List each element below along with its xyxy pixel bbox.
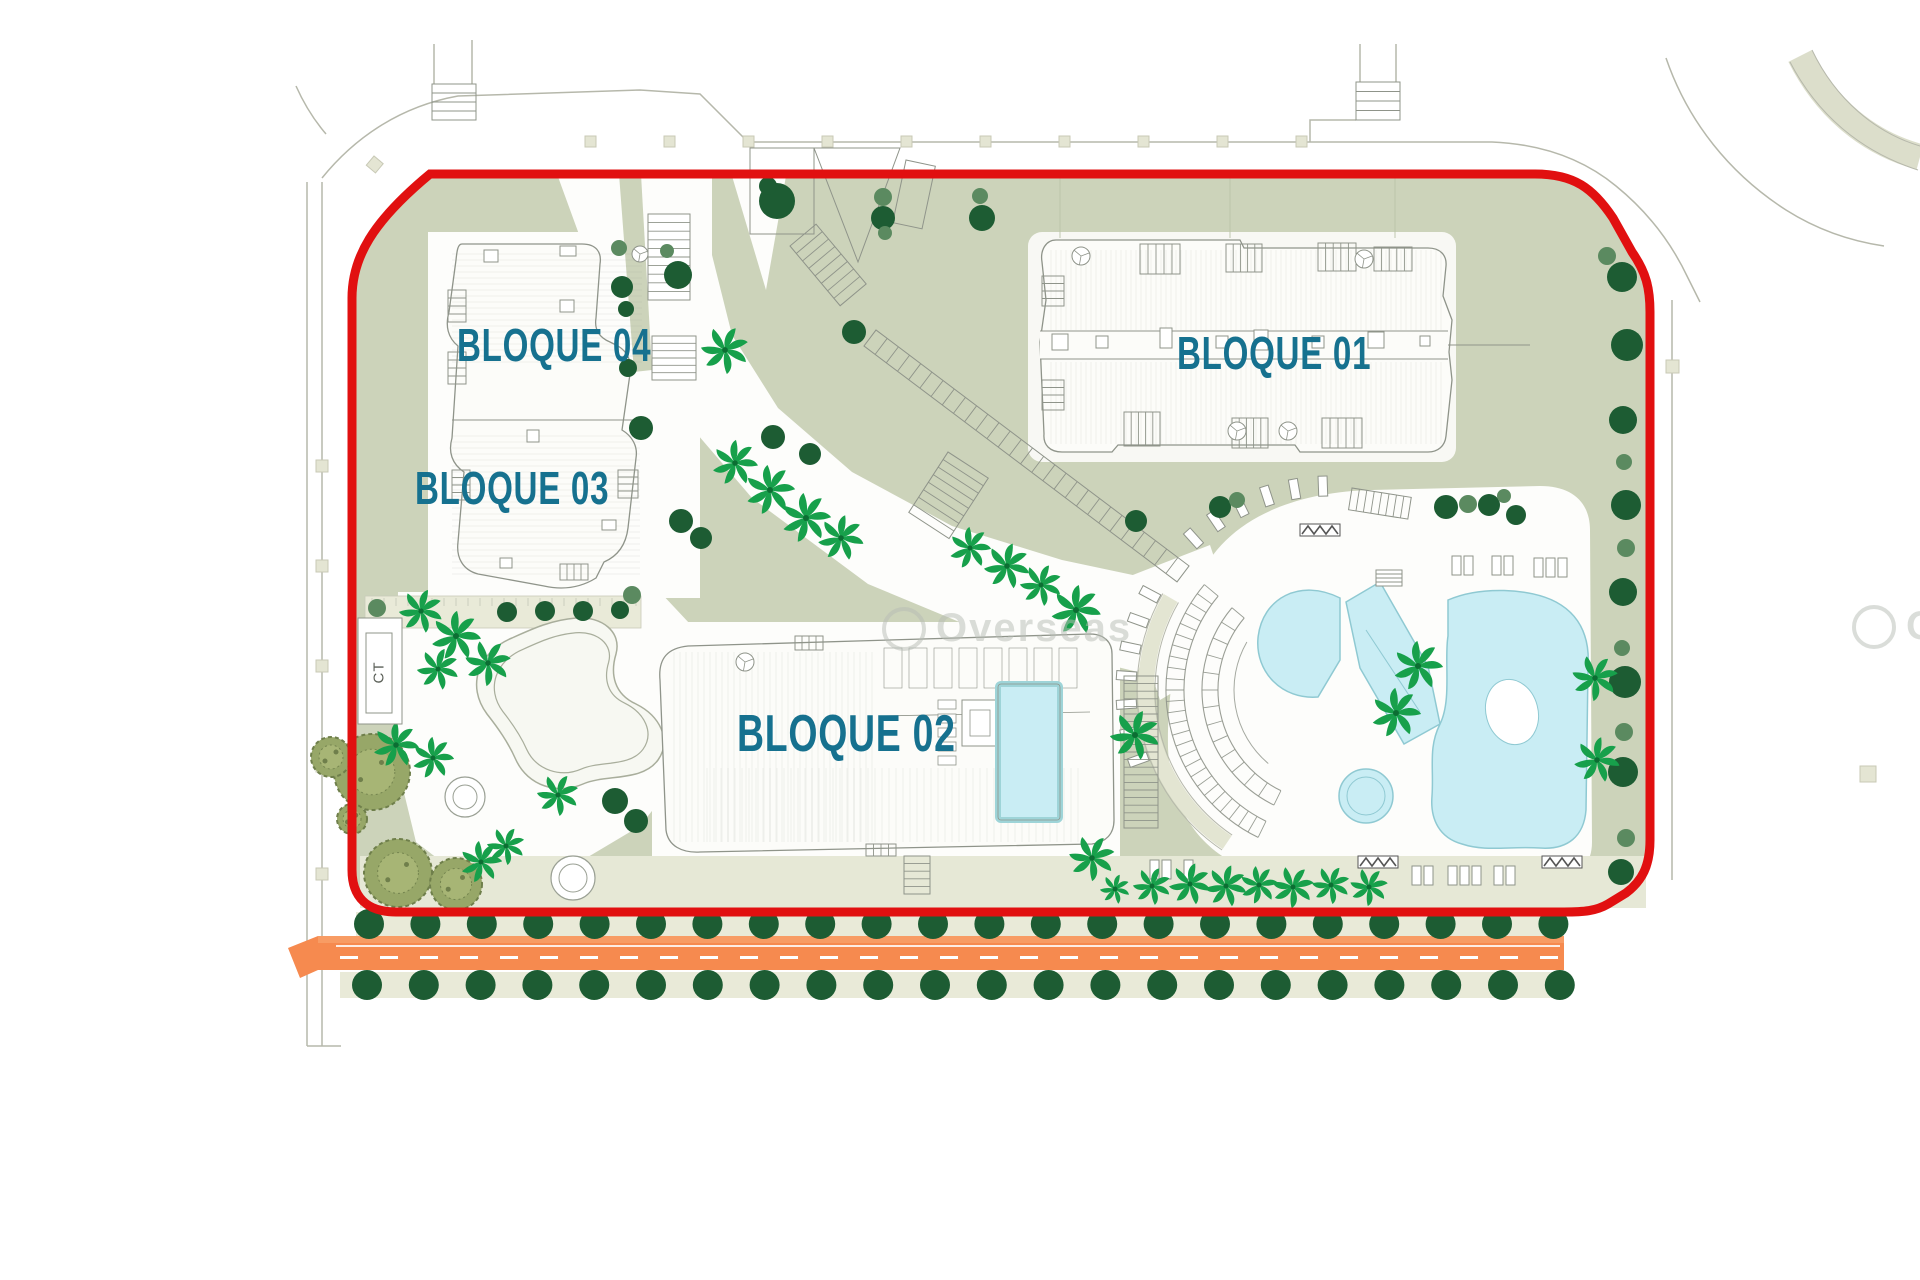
olive-dot <box>379 760 384 765</box>
sidewalk-line <box>1666 58 1884 246</box>
palm-core <box>1132 732 1138 738</box>
tree-icon <box>1608 859 1634 885</box>
tree-icon <box>1034 970 1064 1000</box>
roof-structure <box>962 700 998 746</box>
sidewalk-line <box>1310 120 1356 142</box>
tree-icon <box>1614 640 1630 656</box>
pavement-marker <box>1138 136 1149 147</box>
palm-core <box>1223 883 1228 888</box>
tree-icon <box>920 970 950 1000</box>
watermark-text: Overseas <box>1906 604 1920 649</box>
tree-icon <box>1459 495 1477 513</box>
tree-icon <box>690 527 712 549</box>
watermark-overseas-partial: Overseas <box>1852 604 1920 649</box>
tree-icon <box>669 509 693 533</box>
tree-icon <box>1261 970 1291 1000</box>
fountain <box>551 856 595 900</box>
tree-icon <box>1615 723 1633 741</box>
corridor-core <box>1052 334 1068 350</box>
tree-icon <box>660 244 674 258</box>
sun-lounger <box>1162 860 1171 879</box>
palm-core <box>504 844 509 849</box>
sun-lounger <box>1116 699 1137 709</box>
tree-icon <box>972 188 988 204</box>
palm-core <box>453 633 459 639</box>
tree-icon <box>579 970 609 1000</box>
tree-icon <box>466 970 496 1000</box>
roof-detail <box>484 250 498 262</box>
tree-icon <box>1611 329 1643 361</box>
zigzag-marker <box>1542 856 1582 868</box>
sun-lounger <box>1558 558 1567 577</box>
palm-core <box>1290 884 1295 889</box>
palm-core <box>1415 663 1421 669</box>
sun-lounger <box>1504 556 1513 575</box>
palm-core <box>1329 883 1334 888</box>
olive-dot <box>323 759 328 764</box>
olive-dot <box>385 877 390 882</box>
sun-lounger <box>1318 476 1328 496</box>
tree-icon <box>624 809 648 833</box>
label-ct-transformer: CT <box>371 646 388 700</box>
roof-detail <box>527 430 539 442</box>
tree-icon <box>1598 247 1616 265</box>
tree-icon <box>1506 505 1526 525</box>
sidewalk-line <box>322 90 1492 178</box>
label-bloque-01: BLOQUE 01 <box>1177 330 1371 376</box>
tree-icon <box>969 205 995 231</box>
pavement-marker <box>1860 766 1876 782</box>
pavement-marker <box>1059 136 1070 147</box>
tree-icon <box>1617 539 1635 557</box>
tree-icon <box>1607 262 1637 292</box>
tree-icon <box>636 970 666 1000</box>
tree-icon <box>1478 494 1500 516</box>
palm-core <box>1257 883 1262 888</box>
tree-icon <box>806 970 836 1000</box>
palm-core <box>967 545 972 550</box>
corridor-core <box>1160 328 1172 348</box>
tree-icon <box>573 601 593 621</box>
sun-lounger <box>1506 866 1515 885</box>
pavement-marker <box>316 660 328 672</box>
tree-icon <box>1609 406 1637 434</box>
olive-inner <box>440 868 471 899</box>
label-bloque-03: BLOQUE 03 <box>415 465 609 511</box>
sun-lounger <box>1452 556 1461 575</box>
palm-core <box>1594 757 1600 763</box>
tree-icon <box>759 177 777 195</box>
tree-icon <box>1617 829 1635 847</box>
olive-dot <box>446 887 451 892</box>
site-plan-canvas: BLOQUE 04 BLOQUE 03 BLOQUE 01 BLOQUE 02 … <box>0 0 1920 1280</box>
sidewalk-line <box>296 86 326 134</box>
spiral-stair <box>1355 250 1373 268</box>
sun-lounger <box>1534 558 1543 577</box>
crosswalk-top-right <box>1356 82 1400 120</box>
tree-icon <box>1488 970 1518 1000</box>
palm-core <box>803 515 809 521</box>
tree-icon <box>750 970 780 1000</box>
tree-icon <box>618 301 634 317</box>
spiral-stair <box>1072 247 1090 265</box>
palm-core <box>393 742 399 748</box>
tree-icon <box>1125 510 1147 532</box>
pavement-marker <box>1296 136 1307 147</box>
palm-core <box>478 859 483 864</box>
palm-core <box>1187 881 1192 886</box>
sun-lounger <box>1116 699 1137 709</box>
palm-core <box>1393 710 1399 716</box>
tree-icon <box>878 226 892 240</box>
olive-dot <box>404 862 409 867</box>
sun-lounger <box>1318 476 1328 496</box>
pool-steps <box>1376 570 1402 586</box>
roof-detail <box>560 246 576 256</box>
sun-lounger <box>1460 866 1469 885</box>
tree-icon <box>1318 970 1348 1000</box>
tree-icon <box>761 425 785 449</box>
olive-dot <box>460 875 465 880</box>
palm-core <box>418 608 423 613</box>
tree-icon <box>629 416 653 440</box>
sun-lounger <box>1492 556 1501 575</box>
roof-detail <box>560 300 574 312</box>
tree-icon <box>977 970 1007 1000</box>
zigzag-marker <box>1358 856 1398 868</box>
sun-lounger <box>1464 556 1473 575</box>
spiral-stair <box>1228 422 1246 440</box>
tree-icon <box>1229 492 1245 508</box>
pavement-marker <box>316 868 328 880</box>
palm-core <box>838 535 844 541</box>
olive-inner <box>319 745 343 769</box>
tree-icon <box>799 443 821 465</box>
olive-inner <box>378 853 419 894</box>
zigzag-marker <box>1300 524 1340 536</box>
sun-lounger <box>1546 558 1555 577</box>
corridor-core <box>1096 336 1108 348</box>
palm-core <box>435 666 440 671</box>
palm-core <box>1089 855 1095 861</box>
palm-core <box>1150 884 1155 889</box>
road-tip <box>288 936 318 978</box>
pavement-marker <box>366 156 383 173</box>
pavement-marker <box>822 136 833 147</box>
pavement-marker-tilted <box>366 156 383 173</box>
corridor-core <box>1420 336 1430 346</box>
palm-core <box>767 487 773 493</box>
spiral-stair <box>1279 422 1297 440</box>
pavement-marker <box>1666 360 1679 373</box>
fountain <box>445 777 485 817</box>
tree-icon <box>368 599 386 617</box>
spiral-stair <box>736 653 754 671</box>
tree-icon <box>693 970 723 1000</box>
tree-icon <box>1616 454 1632 470</box>
tree-icon <box>664 261 692 289</box>
tree-icon <box>1147 970 1177 1000</box>
palm-core <box>1038 582 1043 587</box>
palm-core <box>485 660 491 666</box>
palm-core <box>555 792 560 797</box>
roof-detail <box>500 558 512 568</box>
tree-icon <box>409 970 439 1000</box>
palm-core <box>722 347 728 353</box>
tree-icon <box>497 602 517 622</box>
tree-icon <box>611 240 627 256</box>
tree-icon <box>352 970 382 1000</box>
watermark-overseas: Overseas <box>882 606 1132 651</box>
tree-icon <box>1609 666 1641 698</box>
palm-core <box>430 755 435 760</box>
tree-icon <box>1204 970 1234 1000</box>
label-bloque-02: BLOQUE 02 <box>737 708 956 760</box>
tree-icon <box>611 601 629 619</box>
watermark-logo-icon <box>1852 605 1896 649</box>
pavement-marker <box>585 136 596 147</box>
pavement-marker <box>743 136 754 147</box>
pavement-marker <box>316 460 328 472</box>
watermark-logo-icon <box>882 607 926 651</box>
tree-icon <box>863 970 893 1000</box>
tree-icon <box>623 586 641 604</box>
olive-tree-icon <box>311 737 351 777</box>
tree-icon <box>1090 970 1120 1000</box>
tree-icon <box>602 788 628 814</box>
tree-icon <box>535 601 555 621</box>
tree-icon <box>1374 970 1404 1000</box>
tree-icon <box>1497 489 1511 503</box>
olive-dot <box>334 750 339 755</box>
label-bloque-04: BLOQUE 04 <box>457 322 651 368</box>
palm-core <box>732 460 738 466</box>
palm-core <box>1592 675 1598 681</box>
pavement-marker <box>664 136 675 147</box>
sun-lounger <box>1448 866 1457 885</box>
palm-core <box>1367 885 1372 890</box>
pavement-marker <box>980 136 991 147</box>
tree-icon <box>611 276 633 298</box>
pavement-marker <box>1217 136 1228 147</box>
sun-lounger <box>1424 866 1433 885</box>
tree-icon <box>1611 490 1641 520</box>
tree-icon <box>1609 578 1637 606</box>
sun-lounger <box>1412 866 1421 885</box>
olive-tree-icon <box>364 839 432 907</box>
bloque-02-pool <box>998 684 1060 820</box>
spiral-stair <box>632 246 648 262</box>
roof-detail <box>602 520 616 530</box>
pavement-marker <box>901 136 912 147</box>
entry-stairs <box>652 336 696 380</box>
tree-icon <box>1209 496 1231 518</box>
tree-icon <box>1434 495 1458 519</box>
tree-icon <box>1431 970 1461 1000</box>
olive-dot <box>358 777 363 782</box>
watermark-text: Overseas <box>936 606 1132 651</box>
palm-core <box>1113 887 1118 892</box>
tree-icon <box>1545 970 1575 1000</box>
pavement-marker <box>316 560 328 572</box>
tree-icon <box>874 188 892 206</box>
sun-lounger <box>1494 866 1503 885</box>
crosswalk-top-left <box>432 84 476 120</box>
tree-icon <box>522 970 552 1000</box>
palm-core <box>1004 563 1010 569</box>
tree-icon <box>842 320 866 344</box>
sun-lounger <box>1472 866 1481 885</box>
